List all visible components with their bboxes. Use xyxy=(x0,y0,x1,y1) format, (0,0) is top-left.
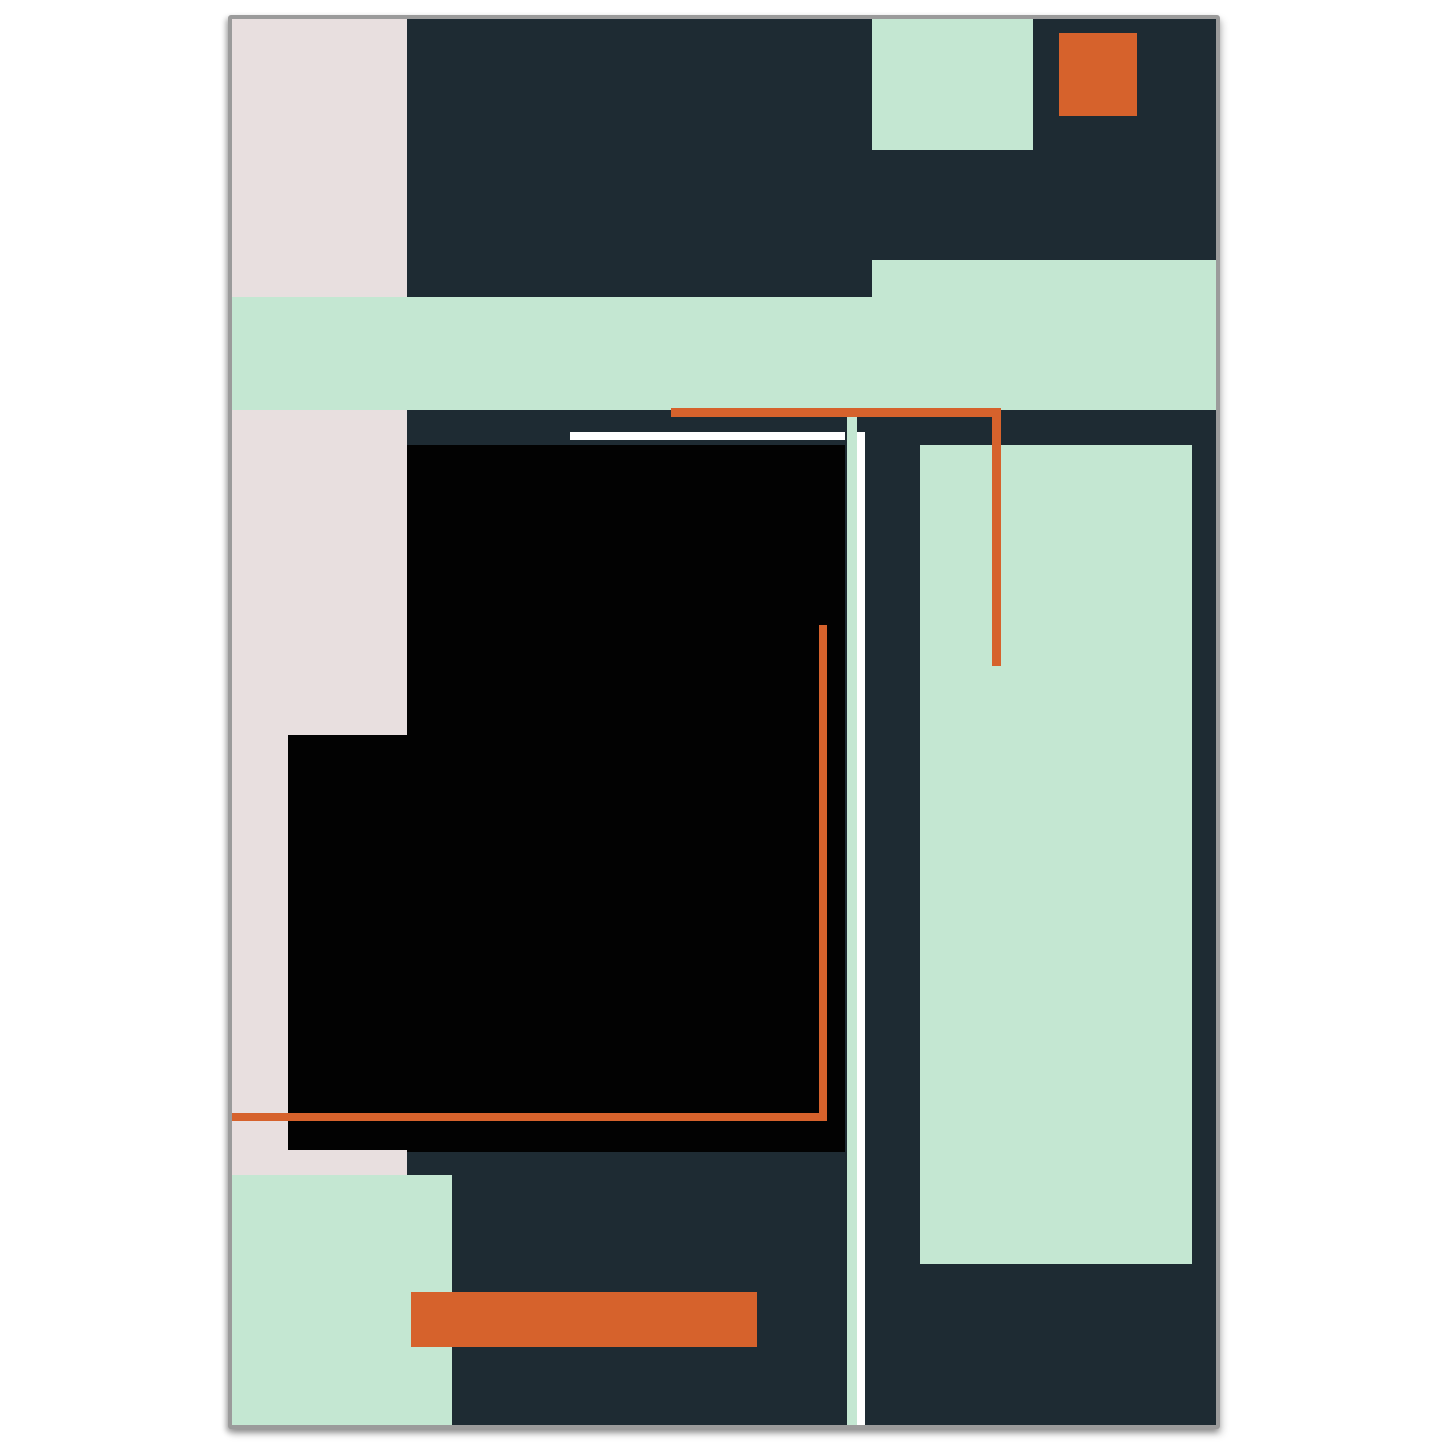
orange-line-horizontal xyxy=(671,408,1001,417)
poster-artwork xyxy=(228,15,1220,1429)
orange-thin-line-vertical xyxy=(819,625,827,1121)
mint-stripe-vertical xyxy=(847,410,857,1426)
orange-bar-bottom xyxy=(411,1292,757,1347)
black-field-main xyxy=(407,445,845,1152)
orange-line-vertical xyxy=(992,408,1001,666)
mint-panel-right xyxy=(920,445,1192,1264)
white-stripe-vertical xyxy=(857,432,865,1426)
black-field-left xyxy=(288,735,407,1150)
orange-square-top xyxy=(1059,33,1137,116)
page-background xyxy=(0,0,1445,1445)
mint-rect-top xyxy=(872,19,1033,150)
pink-column-narrow xyxy=(232,735,288,1150)
pink-step xyxy=(232,1150,407,1175)
orange-thin-line-horizontal xyxy=(232,1113,827,1121)
mint-band-raised xyxy=(872,260,1220,410)
white-line-horizontal xyxy=(570,432,845,440)
